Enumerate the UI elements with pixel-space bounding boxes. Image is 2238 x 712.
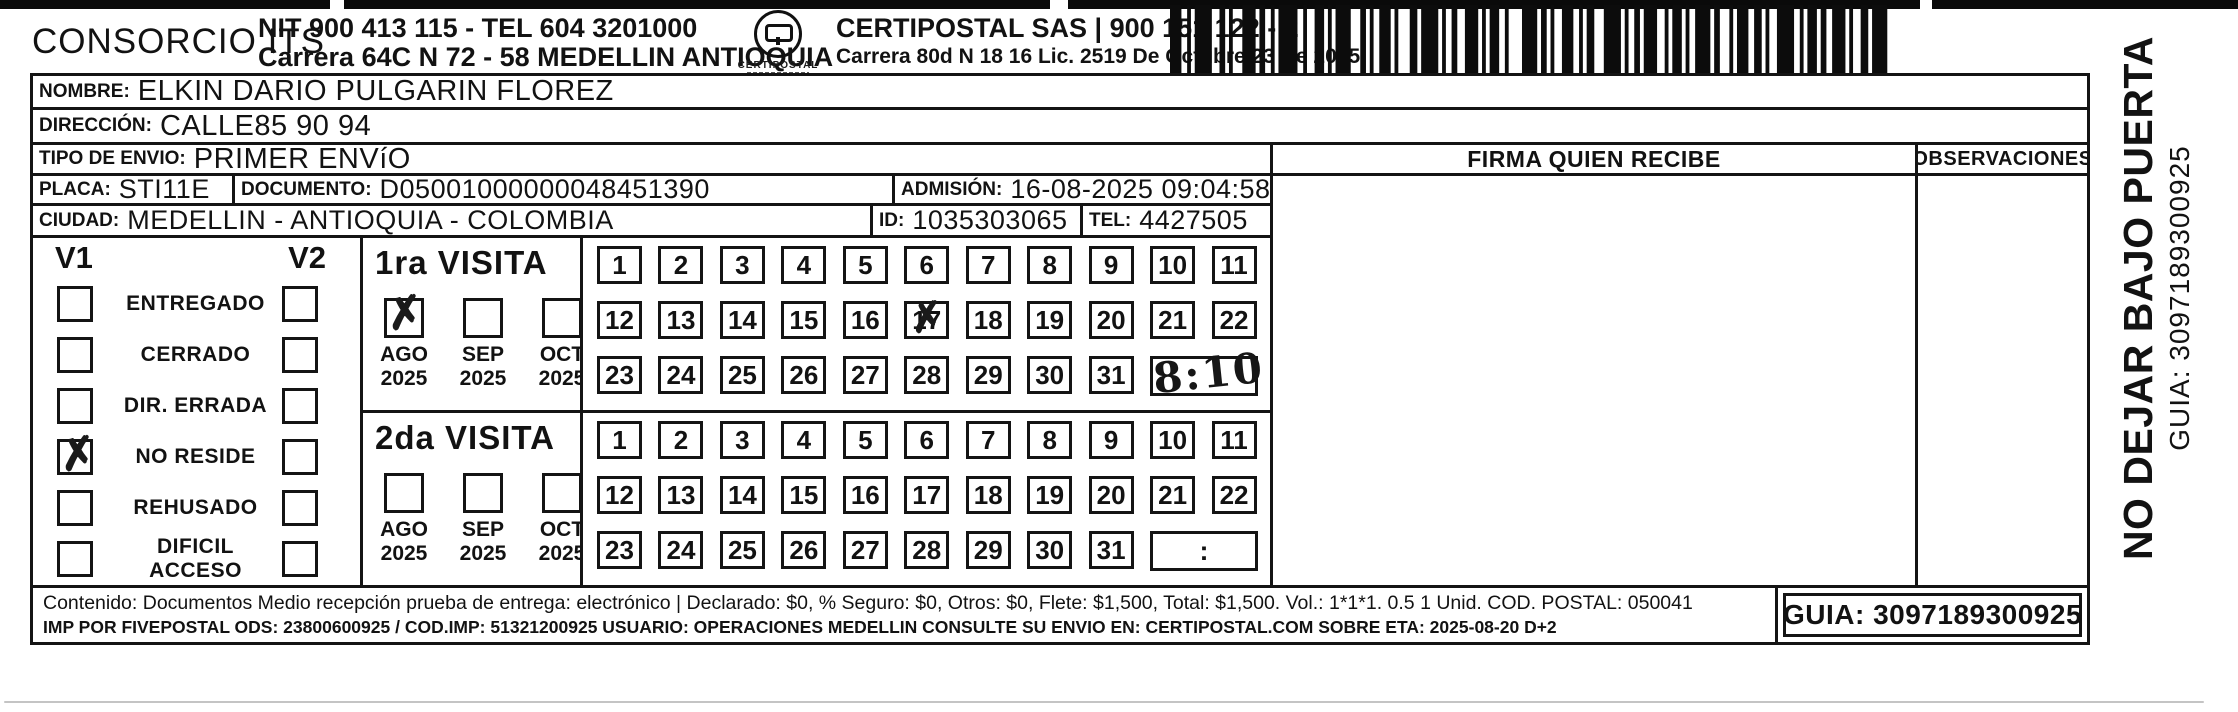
day-number: 6 (920, 250, 934, 281)
handwritten-x-mark: ✗ (380, 289, 430, 339)
day-number: 27 (851, 535, 880, 566)
day-box: 29 (966, 356, 1011, 394)
day-box: 16 (843, 301, 888, 339)
day-box: 1 (597, 246, 642, 284)
day-box: 1 (597, 421, 642, 459)
month-option: SEP2025 (454, 473, 512, 566)
day-number: 31 (1097, 360, 1126, 391)
visit-time-box: : (1150, 531, 1258, 571)
side-note-guia: GUIA: 3097189300925 (2164, 145, 2196, 450)
visit1-title: 1ra VISITA (375, 244, 548, 282)
day-box: 16 (843, 476, 888, 514)
day-row: 1234567891011 (597, 421, 1258, 459)
day-number: 9 (1104, 425, 1118, 456)
day-number: 20 (1097, 480, 1126, 511)
day-number: 25 (728, 360, 757, 391)
observaciones-area (1915, 173, 2090, 588)
visit2-day-grid: 1234567891011121314151617181920212223242… (580, 410, 1273, 588)
certipostal-logo-icon (754, 10, 802, 58)
field-nombre: NOMBRE: ELKIN DARIO PULGARIN FLOREZ (30, 73, 2090, 110)
day-box: 11 (1212, 421, 1257, 459)
status-row: DIR. ERRADA (33, 380, 360, 431)
day-number: 7 (981, 250, 995, 281)
day-box: 15 (781, 476, 826, 514)
day-box: 24 (658, 531, 703, 569)
day-box: 3 (720, 246, 765, 284)
firma-header: FIRMA QUIEN RECIBE (1270, 142, 1918, 176)
month-name: AGO (380, 343, 428, 367)
day-box: 23 (597, 531, 642, 569)
month-option: ✗AGO2025 (375, 298, 433, 391)
scan-artifact-gap (1050, 0, 1068, 9)
company-nit-line: NIT 900 413 115 - TEL 604 3201000 (258, 13, 697, 44)
day-row: 121314151617✗1819202122 (597, 301, 1258, 339)
field-admision: ADMISIÓN: 16-08-2025 09:04:58 (892, 173, 1273, 206)
day-box: 9 (1089, 246, 1134, 284)
day-box: 7 (966, 246, 1011, 284)
day-box: 31 (1089, 356, 1134, 394)
day-row: 232425262728293031: (597, 531, 1258, 571)
day-number: 13 (666, 480, 695, 511)
day-number: 3 (735, 425, 749, 456)
day-number: 1 (612, 425, 626, 456)
logo-caption: CERTIPOSTAL (723, 60, 833, 71)
day-row: 1234567891011 (597, 246, 1258, 284)
tel-value: 4427505 (1139, 205, 1248, 236)
day-number: 26 (789, 360, 818, 391)
field-direccion: DIRECCIÓN: CALLE85 90 94 (30, 107, 2090, 145)
day-box: 19 (1027, 301, 1072, 339)
side-note: NO DEJAR BAJO PUERTA GUIA: 3097189300925 (2096, 88, 2214, 508)
ciudad-value: MEDELLIN - ANTIOQUIA - COLOMBIA (127, 205, 614, 236)
day-number: 31 (1097, 535, 1126, 566)
field-tipo-envio: TIPO DE ENVIO: PRIMER ENVíO (30, 142, 1273, 176)
day-number: 23 (605, 535, 634, 566)
delivery-status-panel: V1 V2 ENTREGADOCERRADODIR. ERRADA✗NO RES… (30, 235, 363, 588)
day-box: 27 (843, 356, 888, 394)
field-id: ID: 1035303065 (870, 203, 1083, 238)
day-number: 17 (912, 480, 941, 511)
month-name: OCT (540, 518, 583, 542)
side-note-warning: NO DEJAR BAJO PUERTA (2115, 36, 2162, 560)
day-box: 28 (904, 356, 949, 394)
handwritten-x-mark: ✗ (902, 293, 952, 343)
checkbox-v1 (57, 541, 93, 577)
status-label: CERRADO (109, 343, 282, 367)
day-number: 20 (1097, 305, 1126, 336)
day-number: 18 (974, 305, 1003, 336)
handwritten-x-mark: ✗ (53, 430, 103, 480)
day-box: 30 (1027, 531, 1072, 569)
day-number: 30 (1035, 360, 1064, 391)
day-box: 15 (781, 301, 826, 339)
day-box: 18 (966, 301, 1011, 339)
status-row: ENTREGADO (33, 278, 360, 329)
day-box: 5 (843, 246, 888, 284)
day-box: 12 (597, 301, 642, 339)
day-number: 13 (666, 305, 695, 336)
day-number: 12 (605, 480, 634, 511)
id-label: ID: (879, 210, 904, 232)
day-number: 4 (797, 425, 811, 456)
tel-label: TEL: (1089, 210, 1131, 232)
day-box: 20 (1089, 476, 1134, 514)
day-number: 29 (974, 535, 1003, 566)
certipostal-logo: CERTIPOSTAL (723, 10, 833, 75)
day-box: 20 (1089, 301, 1134, 339)
status-label: REHUSADO (109, 496, 282, 520)
documento-value: D05001000000048451390 (380, 174, 710, 205)
month-year: 2025 (539, 367, 583, 391)
day-number: 10 (1158, 250, 1187, 281)
day-box: 31 (1089, 531, 1134, 569)
visit2-panel: 2da VISITA AGO2025SEP2025OCT2025 (360, 410, 583, 588)
day-number: 22 (1220, 305, 1249, 336)
day-box: 23 (597, 356, 642, 394)
day-number: 19 (1035, 480, 1064, 511)
checkbox-v2 (282, 286, 318, 322)
day-box: 11 (1212, 246, 1257, 284)
visit-time-box: 8:10 (1150, 356, 1258, 396)
day-box: 5 (843, 421, 888, 459)
day-number: 24 (666, 360, 695, 391)
nombre-value: ELKIN DARIO PULGARIN FLOREZ (138, 75, 614, 108)
status-row: CERRADO (33, 329, 360, 380)
day-number: 27 (851, 360, 880, 391)
observaciones-header-label: OBSERVACIONES (1915, 148, 2090, 171)
observaciones-header: OBSERVACIONES (1915, 142, 2090, 176)
shipment-content-line: Contenido: Documentos Medio recepción pr… (43, 592, 1693, 615)
day-box: 29 (966, 531, 1011, 569)
month-option: SEP2025 (454, 298, 512, 391)
visit1-column-header: V1 (55, 240, 93, 276)
day-number: 28 (912, 535, 941, 566)
day-number: 26 (789, 535, 818, 566)
checkbox-v2 (282, 541, 318, 577)
month-name: SEP (462, 518, 504, 542)
visit1-panel: 1ra VISITA ✗AGO2025SEP2025OCT2025 (360, 235, 583, 413)
day-number: 29 (974, 360, 1003, 391)
checkbox-month (463, 298, 503, 338)
status-row: DIFICIL ACCESO (33, 533, 360, 584)
day-number: 15 (789, 305, 818, 336)
field-documento: DOCUMENTO: D05001000000048451390 (232, 173, 895, 206)
day-box: 4 (781, 246, 826, 284)
placa-label: PLACA: (39, 179, 111, 201)
checkbox-month (463, 473, 503, 513)
day-box: 10 (1150, 246, 1195, 284)
month-year: 2025 (460, 367, 507, 391)
day-box: 26 (781, 531, 826, 569)
day-box: 21 (1150, 301, 1195, 339)
tipo-envio-value: PRIMER ENVíO (194, 143, 411, 176)
day-box: 12 (597, 476, 642, 514)
id-value: 1035303065 (912, 205, 1067, 236)
field-placa: PLACA: STI11E (30, 173, 235, 206)
status-label: ENTREGADO (109, 292, 282, 316)
visit1-day-grid: 1234567891011121314151617✗18192021222324… (580, 235, 1273, 413)
month-name: AGO (380, 518, 428, 542)
day-number: 2 (674, 425, 688, 456)
day-number: 16 (851, 480, 880, 511)
day-number: 9 (1104, 250, 1118, 281)
day-box: 30 (1027, 356, 1072, 394)
admision-value: 16-08-2025 09:04:58 (1010, 174, 1270, 205)
checkbox-month: ✗ (384, 298, 424, 338)
day-number: 2 (674, 250, 688, 281)
day-box: 6 (904, 421, 949, 459)
firma-signature-area (1270, 173, 1918, 588)
day-number: 7 (981, 425, 995, 456)
day-number: 11 (1220, 425, 1248, 456)
day-number: 5 (858, 250, 872, 281)
tracking-barcode (1170, 5, 1893, 73)
day-number: 5 (858, 425, 872, 456)
status-row: REHUSADO (33, 482, 360, 533)
checkbox-v1 (57, 388, 93, 424)
checkbox-month (542, 298, 582, 338)
day-number: 1 (612, 250, 626, 281)
day-box: 6 (904, 246, 949, 284)
day-box: 7 (966, 421, 1011, 459)
day-box: 9 (1089, 421, 1134, 459)
time-separator: : (1200, 536, 1209, 567)
direccion-label: DIRECCIÓN: (39, 115, 152, 137)
day-number: 8 (1042, 250, 1056, 281)
day-number: 18 (974, 480, 1003, 511)
day-box: 28 (904, 531, 949, 569)
day-box: 13 (658, 301, 703, 339)
month-name: OCT (540, 343, 583, 367)
documento-label: DOCUMENTO: (241, 179, 372, 201)
delivery-form: NOMBRE: ELKIN DARIO PULGARIN FLOREZ DIRE… (30, 73, 2090, 645)
day-box: 4 (781, 421, 826, 459)
day-box: 27 (843, 531, 888, 569)
day-number: 24 (666, 535, 695, 566)
day-box: 8 (1027, 246, 1072, 284)
status-row: ✗NO RESIDE (33, 431, 360, 482)
month-year: 2025 (539, 542, 583, 566)
handwritten-time: 8:10 (1151, 344, 1257, 403)
day-box: 8 (1027, 421, 1072, 459)
checkbox-month (384, 473, 424, 513)
checkbox-v2 (282, 490, 318, 526)
day-number: 6 (920, 425, 934, 456)
day-number: 15 (789, 480, 818, 511)
status-label: DIFICIL ACCESO (109, 535, 282, 583)
ciudad-label: CIUDAD: (39, 210, 119, 232)
day-number: 22 (1220, 480, 1249, 511)
day-number: 21 (1158, 305, 1187, 336)
shipment-details-block: Contenido: Documentos Medio recepción pr… (30, 585, 1778, 645)
day-number: 8 (1042, 425, 1056, 456)
checkbox-v1 (57, 286, 93, 322)
checkbox-v2 (282, 337, 318, 373)
day-box: 25 (720, 356, 765, 394)
checkbox-v1 (57, 490, 93, 526)
day-box: 2 (658, 246, 703, 284)
status-label: DIR. ERRADA (109, 394, 282, 418)
shipment-imp-line: IMP POR FIVEPOSTAL ODS: 23800600925 / CO… (43, 617, 1557, 638)
guia-number: GUIA: 3097189300925 (1783, 593, 2082, 637)
direccion-value: CALLE85 90 94 (160, 110, 371, 143)
day-number: 23 (605, 360, 634, 391)
field-ciudad: CIUDAD: MEDELLIN - ANTIOQUIA - COLOMBIA (30, 203, 873, 238)
day-number: 21 (1158, 480, 1187, 511)
day-number: 19 (1035, 305, 1064, 336)
status-label: NO RESIDE (109, 445, 282, 469)
day-box: 25 (720, 531, 765, 569)
day-box: 26 (781, 356, 826, 394)
tipo-envio-label: TIPO DE ENVIO: (39, 148, 186, 170)
checkbox-v2 (282, 439, 318, 475)
visit2-title: 2da VISITA (375, 419, 555, 457)
day-box: 14 (720, 301, 765, 339)
day-number: 14 (728, 480, 757, 511)
day-box: 10 (1150, 421, 1195, 459)
day-number: 4 (797, 250, 811, 281)
day-box: 22 (1212, 301, 1257, 339)
day-box: 2 (658, 421, 703, 459)
scanned-shipping-label: CONSORCIO ITS NIT 900 413 115 - TEL 604 … (0, 0, 2238, 712)
scan-artifact-gap (1920, 0, 1932, 9)
month-year: 2025 (381, 542, 428, 566)
admision-label: ADMISIÓN: (901, 179, 1002, 201)
day-row: 2324252627282930318:10 (597, 356, 1258, 396)
month-option: OCT2025 (533, 298, 583, 391)
day-number: 25 (728, 535, 757, 566)
day-box: 24 (658, 356, 703, 394)
day-number: 14 (728, 305, 757, 336)
month-option: OCT2025 (533, 473, 583, 566)
day-number: 12 (605, 305, 634, 336)
placa-value: STI11E (119, 174, 210, 205)
day-number: 10 (1158, 425, 1187, 456)
nombre-label: NOMBRE: (39, 81, 130, 103)
month-name: SEP (462, 343, 504, 367)
scan-artifact-bar (0, 0, 2238, 9)
checkbox-month (542, 473, 582, 513)
day-box: 13 (658, 476, 703, 514)
month-year: 2025 (460, 542, 507, 566)
checkbox-v1 (57, 337, 93, 373)
field-tel: TEL: 4427505 (1080, 203, 1273, 238)
day-number: 3 (735, 250, 749, 281)
day-number: 30 (1035, 535, 1064, 566)
scan-artifact-gap (330, 0, 344, 9)
visit2-column-header: V2 (288, 240, 326, 276)
month-option: AGO2025 (375, 473, 433, 566)
day-box: 17 (904, 476, 949, 514)
checkbox-v1: ✗ (57, 439, 93, 475)
firma-header-label: FIRMA QUIEN RECIBE (1467, 146, 1721, 173)
scan-artifact-line (4, 701, 2204, 703)
day-number: 16 (851, 305, 880, 336)
month-year: 2025 (381, 367, 428, 391)
day-number: 11 (1220, 250, 1248, 281)
day-box: 21 (1150, 476, 1195, 514)
day-box: 14 (720, 476, 765, 514)
day-box: 17✗ (904, 301, 949, 339)
day-box: 3 (720, 421, 765, 459)
day-box: 18 (966, 476, 1011, 514)
day-row: 1213141516171819202122 (597, 476, 1258, 514)
day-box: 22 (1212, 476, 1257, 514)
day-number: 28 (912, 360, 941, 391)
day-box: 19 (1027, 476, 1072, 514)
guia-cell: GUIA: 3097189300925 (1775, 585, 2090, 645)
checkbox-v2 (282, 388, 318, 424)
